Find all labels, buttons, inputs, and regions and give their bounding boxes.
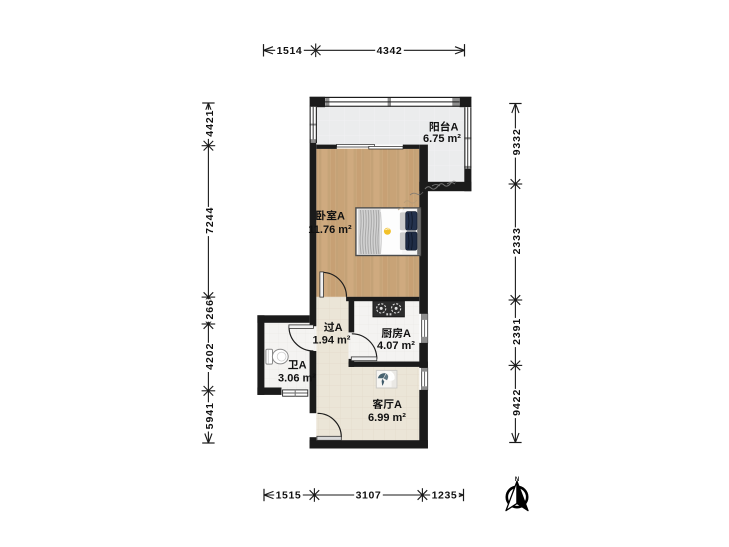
svg-text:2: 2: [204, 343, 216, 349]
svg-text:2: 2: [511, 129, 523, 135]
svg-text:N: N: [515, 477, 519, 483]
svg-text:6.99 m²: 6.99 m²: [368, 412, 406, 424]
svg-text:3.06 m²: 3.06 m²: [278, 373, 316, 385]
svg-text:6.75 m²: 6.75 m²: [423, 133, 461, 145]
svg-text:A: A: [337, 210, 345, 222]
svg-text:5: 5: [204, 423, 216, 429]
svg-text:2: 2: [204, 221, 216, 227]
svg-text:3: 3: [511, 332, 523, 338]
svg-text:6: 6: [204, 307, 216, 313]
svg-text:9: 9: [511, 325, 523, 331]
svg-text:3107: 3107: [356, 490, 382, 502]
svg-text:4342: 4342: [377, 45, 403, 57]
svg-text:0: 0: [204, 350, 216, 356]
svg-text:4: 4: [204, 131, 216, 137]
svg-text:1514: 1514: [277, 45, 303, 57]
svg-text:7: 7: [204, 228, 216, 234]
svg-text:1235: 1235: [432, 490, 458, 502]
svg-text:1515: 1515: [276, 490, 302, 502]
svg-text:1: 1: [204, 403, 216, 409]
svg-text:4: 4: [204, 214, 216, 220]
svg-text:A: A: [451, 122, 459, 134]
svg-text:2: 2: [204, 357, 216, 363]
svg-text:3: 3: [511, 242, 523, 248]
svg-text:4.07 m²: 4.07 m²: [377, 340, 415, 352]
svg-text:A: A: [394, 399, 402, 411]
svg-text:4: 4: [511, 403, 523, 409]
svg-text:1: 1: [511, 319, 523, 325]
svg-text:1: 1: [204, 110, 216, 116]
svg-text:4: 4: [204, 410, 216, 416]
svg-text:3: 3: [511, 136, 523, 142]
svg-text:3: 3: [511, 143, 523, 149]
svg-text:2: 2: [511, 390, 523, 396]
svg-text:2: 2: [511, 396, 523, 402]
svg-text:2: 2: [204, 117, 216, 123]
svg-text:9: 9: [204, 417, 216, 423]
svg-text:9: 9: [511, 149, 523, 155]
svg-text:4: 4: [204, 364, 216, 370]
svg-text:4: 4: [204, 124, 216, 130]
svg-text:A: A: [299, 360, 307, 372]
svg-text:2: 2: [511, 339, 523, 345]
svg-text:6: 6: [204, 300, 216, 306]
svg-text:4: 4: [204, 208, 216, 214]
svg-text:1.94 m²: 1.94 m²: [313, 335, 351, 347]
svg-text:2: 2: [511, 248, 523, 254]
svg-text:3: 3: [511, 228, 523, 234]
svg-text:9: 9: [511, 410, 523, 416]
svg-text:A: A: [403, 328, 411, 340]
svg-text:11.76 m²: 11.76 m²: [308, 224, 352, 236]
svg-text:A: A: [335, 322, 343, 334]
svg-text:2: 2: [204, 314, 216, 320]
svg-text:3: 3: [511, 235, 523, 241]
